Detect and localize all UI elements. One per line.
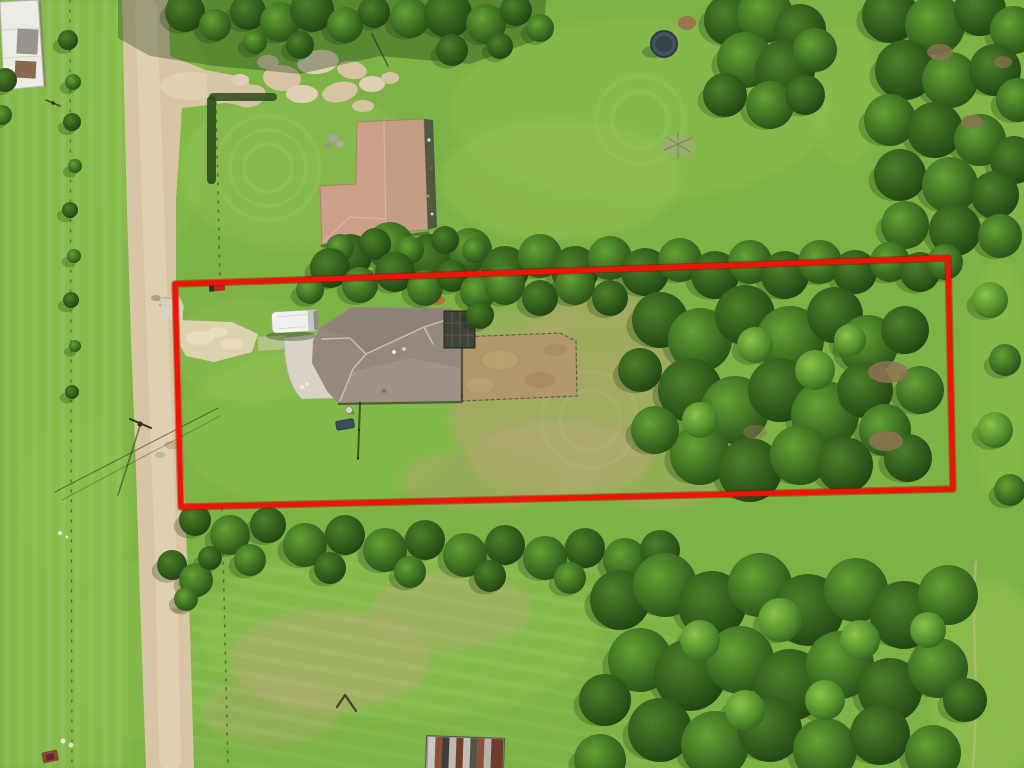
tree bbox=[972, 282, 1008, 318]
tree bbox=[286, 31, 314, 59]
tree bbox=[69, 340, 81, 352]
tree bbox=[65, 74, 81, 90]
tree bbox=[234, 544, 266, 576]
property-yard-shape bbox=[357, 457, 359, 459]
tree bbox=[579, 674, 631, 726]
patio-item bbox=[427, 138, 430, 141]
tree bbox=[840, 620, 880, 660]
tree bbox=[631, 406, 679, 454]
tree bbox=[881, 201, 929, 249]
south-structures-shape bbox=[434, 737, 442, 768]
tree bbox=[971, 171, 1019, 219]
tree bbox=[522, 280, 558, 316]
hedge-row bbox=[207, 96, 216, 184]
south-structures-shape bbox=[455, 738, 463, 768]
flagstone bbox=[231, 74, 249, 86]
flagstone bbox=[381, 72, 399, 84]
property-yard-shape bbox=[482, 351, 518, 369]
south-structures-shape bbox=[427, 737, 435, 768]
tree bbox=[725, 690, 765, 730]
tree bbox=[554, 562, 586, 594]
tree bbox=[63, 292, 79, 308]
tree bbox=[785, 75, 825, 115]
utility-pole bbox=[51, 101, 55, 105]
tree bbox=[65, 385, 79, 399]
tree bbox=[174, 587, 198, 611]
tree bbox=[592, 280, 628, 316]
tree bbox=[68, 159, 82, 173]
property-yard-shape bbox=[359, 402, 361, 404]
south-structures-shape bbox=[476, 738, 484, 768]
property-yard-shape bbox=[466, 378, 494, 392]
tree bbox=[874, 149, 926, 201]
tree bbox=[462, 237, 488, 263]
leaf-debris bbox=[151, 295, 161, 301]
dirt-gap bbox=[743, 425, 767, 439]
property-yard-shape bbox=[543, 344, 567, 356]
tree bbox=[526, 14, 554, 42]
flagstone bbox=[352, 100, 374, 112]
tree bbox=[805, 680, 845, 720]
tree bbox=[737, 327, 773, 363]
property-yard-shape bbox=[220, 338, 244, 350]
dirt-gap bbox=[869, 431, 903, 451]
field-patches-shape bbox=[440, 120, 680, 240]
tree bbox=[342, 267, 378, 303]
south-structures-shape bbox=[490, 739, 503, 768]
dirt-gap bbox=[994, 56, 1012, 68]
boulder bbox=[336, 141, 344, 147]
porch-chair bbox=[305, 382, 308, 385]
patio-item bbox=[426, 194, 429, 197]
aerial-photo bbox=[0, 0, 1024, 768]
tree bbox=[394, 556, 426, 588]
roof-vent bbox=[402, 347, 405, 350]
tree bbox=[758, 598, 802, 642]
tree bbox=[795, 350, 835, 390]
patio-item bbox=[429, 166, 432, 169]
tree bbox=[881, 306, 929, 354]
patio-item bbox=[431, 213, 434, 216]
tree bbox=[314, 552, 346, 584]
flagstone bbox=[286, 85, 318, 103]
south-structures-shape bbox=[483, 739, 491, 768]
boulder bbox=[328, 134, 338, 142]
tree bbox=[703, 73, 747, 117]
tree bbox=[58, 30, 78, 50]
tree bbox=[327, 7, 363, 43]
dirt-gap bbox=[868, 361, 908, 383]
tree bbox=[565, 528, 605, 568]
property-yard-shape bbox=[358, 429, 360, 431]
tree bbox=[618, 348, 662, 392]
tree bbox=[922, 52, 978, 108]
tree bbox=[474, 560, 506, 592]
property-yard-shape bbox=[208, 327, 228, 337]
bin bbox=[69, 743, 74, 748]
debris bbox=[58, 531, 62, 535]
roof-vent bbox=[392, 350, 396, 354]
south-structures-shape bbox=[441, 737, 449, 768]
dark-panel bbox=[16, 28, 38, 54]
tree bbox=[62, 202, 78, 218]
tree bbox=[325, 515, 365, 555]
tree bbox=[436, 34, 468, 66]
hedge-row bbox=[209, 93, 277, 101]
tree bbox=[198, 546, 222, 570]
tree bbox=[850, 705, 910, 765]
tree bbox=[834, 324, 866, 356]
south-structures-shape bbox=[448, 737, 456, 768]
scene-root bbox=[0, 0, 1024, 768]
porch-chair bbox=[300, 385, 304, 389]
dirt-gap bbox=[927, 44, 953, 60]
aerial-photo-canvas bbox=[0, 0, 1024, 768]
tree bbox=[63, 113, 81, 131]
tree bbox=[977, 412, 1013, 448]
tree bbox=[405, 520, 445, 560]
wood-deck bbox=[15, 60, 37, 78]
tree bbox=[466, 301, 494, 329]
rv-shadow bbox=[266, 331, 316, 341]
tree bbox=[250, 507, 286, 543]
tree bbox=[864, 94, 916, 146]
dry-bush bbox=[678, 16, 696, 30]
tree bbox=[682, 402, 718, 438]
tree bbox=[243, 30, 267, 54]
tree bbox=[793, 28, 837, 72]
tree bbox=[680, 620, 720, 660]
tree bbox=[199, 9, 231, 41]
south-structures-shape bbox=[469, 738, 477, 768]
boulder bbox=[325, 142, 331, 148]
property-yard-shape bbox=[383, 390, 386, 393]
tree bbox=[485, 525, 525, 565]
dirt-road-shape bbox=[155, 452, 165, 458]
bin bbox=[61, 739, 66, 744]
trampoline-mat bbox=[656, 36, 673, 53]
property-yard-shape bbox=[524, 372, 556, 388]
mow-stripes-west bbox=[0, 0, 126, 768]
south-structures-shape bbox=[462, 738, 470, 768]
tree bbox=[978, 214, 1022, 258]
tree bbox=[989, 344, 1021, 376]
tree bbox=[943, 678, 987, 722]
dirt-gap bbox=[961, 115, 983, 129]
satellite-dish bbox=[346, 407, 353, 414]
tree bbox=[910, 612, 946, 648]
tree bbox=[431, 226, 459, 254]
debris bbox=[66, 536, 69, 539]
tree bbox=[67, 249, 81, 263]
tree bbox=[907, 102, 963, 158]
tree bbox=[487, 33, 513, 59]
